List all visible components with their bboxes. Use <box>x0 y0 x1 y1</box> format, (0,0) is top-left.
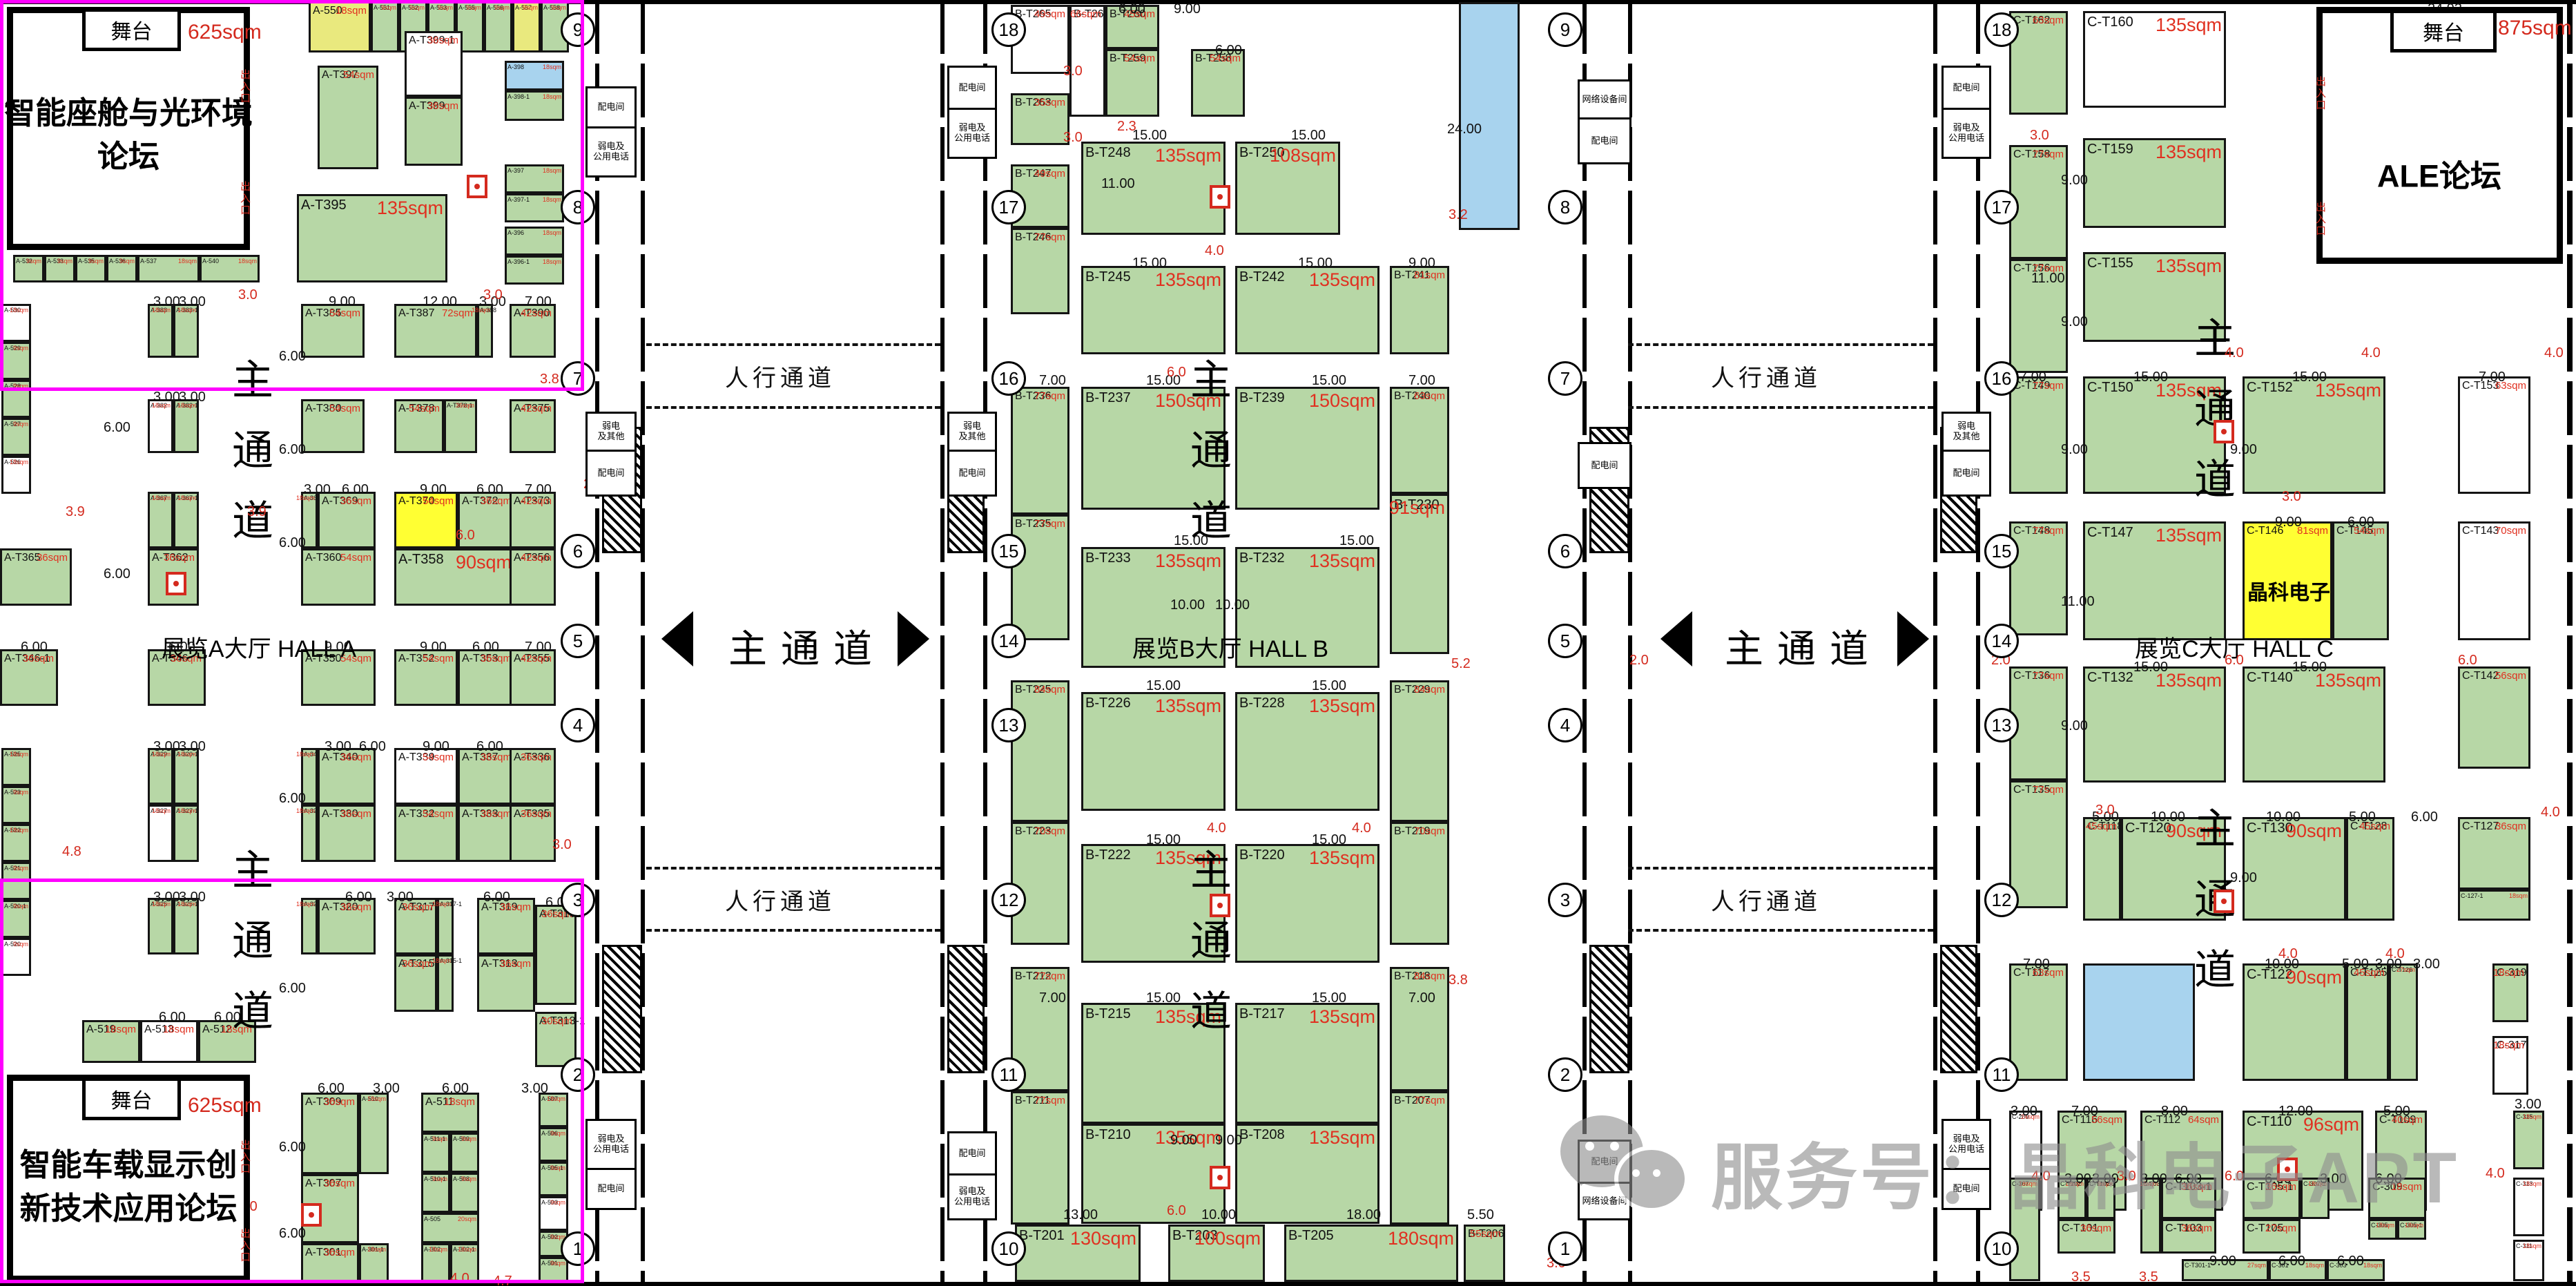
booth-area: 18sqm <box>432 901 451 908</box>
dimension-label: 6.00 <box>104 566 130 582</box>
dimension-label: 6.00 <box>2411 809 2438 825</box>
utility-room: 配电间 <box>585 86 637 128</box>
dimension-label: 6.00 <box>279 981 306 997</box>
axis-number-2: 2 <box>561 1057 595 1092</box>
booth-area: 18sqm <box>458 1246 476 1253</box>
booth-area: 9sqm <box>551 4 566 11</box>
dimension-label: 3.5 <box>2071 1269 2091 1285</box>
booth-A-T352: A-T35254sqm <box>394 649 458 706</box>
booth-area: 180sqm <box>1388 1228 1454 1249</box>
dimension-label: 6.00 <box>483 890 510 905</box>
booth-area: 18sqm <box>2523 1242 2541 1249</box>
booth-id: B-T226 <box>1085 695 1131 711</box>
booth-area: 9sqm <box>550 1199 565 1206</box>
booth-area: 27sqm <box>2247 1262 2266 1269</box>
dimension-label: 3.2 <box>1449 207 1468 223</box>
dimension-label: 3.00 <box>304 482 331 498</box>
booth-A-398-1: A-398-118sqm <box>505 90 564 121</box>
utility-room: 弱电 及其他 <box>1941 412 1991 452</box>
booth-A-551: A-5519sqm <box>371 1 399 52</box>
dimension-label: 15.00 <box>1174 533 1208 549</box>
booth-area: 135sqm <box>2156 15 2222 36</box>
dimension-label: 6.00 <box>345 890 372 905</box>
booth-area: 36sqm <box>427 100 458 112</box>
dimension-label: 15.00 <box>1312 990 1346 1006</box>
booth-area: 54sqm <box>343 69 374 81</box>
booth-A-T333: A-T33336sqm <box>458 805 516 862</box>
axis-number-1: 1 <box>561 1231 595 1266</box>
dimension-label: 15.00 <box>2292 660 2327 675</box>
booth-area: 9sqm <box>461 1135 476 1142</box>
axis-number-11: 11 <box>991 1057 1026 1092</box>
axis-number-3: 3 <box>1548 883 1582 917</box>
booth-B-T201: B-T201130sqm <box>1015 1225 1141 1282</box>
booth-id: A-505 <box>424 1216 440 1222</box>
dimension-label: 3.00 <box>179 390 206 405</box>
booth-area: 42sqm <box>521 403 552 414</box>
dimension-label: 9.00 <box>2061 173 2088 189</box>
axis-number-13: 13 <box>1984 708 2019 742</box>
booth-area: 63sqm <box>1414 390 1445 402</box>
strip-wall-right-1 <box>641 0 645 1286</box>
booth-A-510: A-51018sqm <box>359 1093 389 1174</box>
booth-area: 36sqm <box>521 808 552 820</box>
booth-C-T147: C-T147135sqm <box>2083 521 2226 640</box>
booth-A-525: A-52518sqm <box>1 748 31 786</box>
dimension-label: 6.0 <box>2225 653 2244 669</box>
forum-ale-area: 875sqm <box>2498 17 2572 40</box>
axis-number-4: 4 <box>1548 708 1582 742</box>
booth-A-T353: A-T35336sqm <box>458 649 516 706</box>
booth-C-T128: C-T12845sqm <box>2346 817 2394 921</box>
dimension-label: 9.00 <box>2061 314 2088 330</box>
booth-C-315: C-31518sqm <box>2513 1111 2544 1169</box>
booth-id: C-T150 <box>2087 380 2133 396</box>
booth-area: 18sqm <box>444 1096 475 1108</box>
forum-a-bottom-entrance-2: 出入口 <box>238 1228 252 1263</box>
booth-area: 56sqm <box>2495 670 2526 682</box>
booth-A-T301: A-T30136sqm <box>301 1243 359 1282</box>
booth-area: 77sqm <box>1034 518 1065 530</box>
booth-A-T378: A-T37854sqm <box>394 399 444 453</box>
booth-A-T317: A-T31736sqm <box>394 898 437 954</box>
booth-area: 18sqm <box>178 258 197 265</box>
dimension-label: 6.00 <box>442 1081 469 1097</box>
axis-number-12: 12 <box>991 883 1026 917</box>
booth-area: 9sqm <box>119 258 135 265</box>
booth-A-T335: A-T33536sqm <box>510 805 556 862</box>
booth-C-T143: C-T14370sqm <box>2458 521 2530 640</box>
dimension-label: 3.0 <box>552 837 572 853</box>
dimension-label: 15.00 <box>1312 373 1346 389</box>
booth-A-396: A-39618sqm <box>505 227 564 256</box>
booth-area: 135sqm <box>2156 142 2222 163</box>
booth-A-325: A-32518sqm <box>148 898 173 954</box>
booth-area: 135sqm <box>1309 1127 1375 1149</box>
booth-area: 135sqm <box>1155 269 1221 291</box>
booth-area: 70sqm <box>1414 825 1445 837</box>
booth-A-505: A-50520sqm <box>421 1213 479 1243</box>
axis-number-9: 9 <box>1548 12 1582 47</box>
dimension-label: 15.00 <box>1291 128 1326 144</box>
booth-A-302: A-30218sqm <box>421 1243 450 1282</box>
booth-id: C-T142 <box>2462 670 2499 682</box>
booth-area: 18sqm <box>10 827 28 834</box>
booth-area: 9sqm <box>523 4 538 11</box>
axis-number-2: 2 <box>1548 1057 1582 1092</box>
dimension-label: 5.50 <box>1467 1207 1494 1223</box>
dimension-label: 15.00 <box>1146 678 1181 694</box>
booth-area: 55sqm <box>1470 1228 1501 1240</box>
strip-wall-right-4 <box>1976 0 1980 1286</box>
booth-C-127-1: C-127-118sqm <box>2458 890 2530 921</box>
dimension-label: 9.00 <box>2061 442 2088 458</box>
dimension-label: 3.00 <box>153 294 180 310</box>
booth-id: A-397 <box>507 167 524 174</box>
booth-area: 135sqm <box>377 198 443 219</box>
dimension-label: 6.0 <box>1167 365 1186 381</box>
booth-area: 9sqm <box>13 865 28 872</box>
reserved-area-1 <box>1459 2 1520 230</box>
booth-A-317-1: A-317-118sqm <box>437 898 454 954</box>
booth-id: B-T232 <box>1239 550 1285 566</box>
booth-A-533: A-5339sqm <box>44 255 75 282</box>
booth-area: 35sqm <box>1034 97 1065 108</box>
booth-A-T358: A-T35890sqm <box>394 548 516 606</box>
dimension-label: 3.8 <box>540 372 559 387</box>
booth-B-T228: B-T228135sqm <box>1235 692 1379 811</box>
dimension-label: 4.0 <box>2385 946 2405 962</box>
booth-B-T241: B-T24181sqm <box>1390 266 1449 354</box>
booth-id: A-T360 <box>305 552 341 564</box>
dimension-label: 9.00 <box>2230 442 2257 458</box>
booth-id: B-T217 <box>1239 1006 1285 1022</box>
booth-id: B-T237 <box>1085 390 1131 406</box>
dimension-label: 15.00 <box>2133 370 2168 385</box>
main-aisle-arrow-right-1 <box>898 611 929 666</box>
booth-area: 18sqm <box>152 495 171 501</box>
booth-A-T360: A-T36054sqm <box>301 548 376 606</box>
booth-B-T259: B-T25954sqm <box>1105 49 1159 117</box>
dimension-label: 15.00 <box>1132 128 1167 144</box>
dimension-label: 9.00 <box>1174 1 1201 17</box>
main-aisle-arrow-right-2 <box>1897 611 1929 666</box>
reserved-area-2 <box>2083 963 2195 1081</box>
axis-number-6: 6 <box>561 534 595 568</box>
booth-A-521: A-5219sqm <box>1 862 31 900</box>
dimension-label: 5.00 <box>2342 957 2369 972</box>
main-aisle-horizontal-1: 主通道 <box>728 618 886 674</box>
fire-exit-icon <box>467 175 487 198</box>
dimension-label: 3.9 <box>247 504 267 520</box>
axis-number-5: 5 <box>1548 624 1582 658</box>
dimension-label: 3.00 <box>153 890 180 905</box>
fire-exit-icon <box>301 1203 322 1227</box>
booth-area: 54sqm <box>409 403 440 414</box>
booth-B-T217: B-T217135sqm <box>1235 1003 1379 1124</box>
axis-number-5: 5 <box>561 624 595 658</box>
booth-area: 18sqm <box>543 196 561 203</box>
booth-area: 9sqm <box>13 421 28 428</box>
dimension-label: 2.3 <box>1117 119 1136 135</box>
axis-number-3: 3 <box>561 883 595 917</box>
dimension-label: 9.00 <box>329 294 356 310</box>
booth-A-508: A-5089sqm <box>450 1173 479 1213</box>
utility-room: 配电间 <box>947 450 997 497</box>
booth-A-536: A-5369sqm <box>106 255 137 282</box>
main-aisle-horizontal-2: 主通道 <box>1725 618 1882 674</box>
booth-A-T309: A-T30936sqm <box>301 1093 359 1174</box>
booth-C-T142: C-T14256sqm <box>2458 666 2530 769</box>
dimension-label: 11.00 <box>2031 271 2065 287</box>
booth-A-T355: A-T35542sqm <box>510 649 556 706</box>
booth-id: B-T248 <box>1085 145 1131 161</box>
booth-area: 77sqm <box>2033 148 2064 160</box>
booth-A-396-1: A-396-118sqm <box>505 256 564 285</box>
strip-hatch-bottom-2 <box>947 945 985 1073</box>
booth-A-535: A-5359sqm <box>75 255 106 282</box>
booth-B-T230: B-T23091sqm <box>1390 494 1449 654</box>
booth-A-T319: A-T31936sqm <box>477 898 535 954</box>
booth-A-T369: A-T36936sqm <box>318 492 376 548</box>
booth-C-T130: C-T13090sqm <box>2243 817 2346 921</box>
booth-A-328: A-32818sqm <box>301 805 318 862</box>
booth-A-506: A-5069sqm <box>539 1127 568 1162</box>
dimension-label: 10.00 <box>2151 809 2185 825</box>
dimension-label: 7.00 <box>2023 957 2050 972</box>
booth-A-T370: A-T37054sqm <box>394 492 458 548</box>
booth-area: 18sqm <box>296 751 315 758</box>
booth-A-T337: A-T33736sqm <box>458 748 516 805</box>
main-aisle-vertical-3: 主 通 道 <box>1189 345 1233 557</box>
booth-A-510-1: A-510-19sqm <box>421 1173 450 1213</box>
booth-id: A-T395 <box>301 198 347 213</box>
dimension-label: 9.00 <box>420 482 447 498</box>
booth-A-505-1: A-505-19sqm <box>539 1162 568 1196</box>
booth-A-522: A-52218sqm <box>1 824 31 862</box>
dimension-label: 3.8 <box>1449 972 1468 988</box>
dimension-label: 3.00 <box>373 1081 400 1097</box>
booth-B-T206: B-T20655sqm <box>1464 1225 1505 1282</box>
booth-area: 54sqm <box>340 552 371 564</box>
dimension-label: 7.00 <box>1408 990 1435 1006</box>
right-outer-wall <box>2567 0 2573 1286</box>
booth-B-T229: B-T22984sqm <box>1390 680 1449 822</box>
booth-C-T145: C-T14554sqm <box>2332 521 2389 640</box>
booth-id: B-T210 <box>1085 1127 1131 1143</box>
booth-area: 9sqm <box>550 1164 565 1171</box>
booth-A-T399: A-T39936sqm <box>405 97 463 166</box>
dimension-label: 9.00 <box>1170 1133 1197 1149</box>
booth-area: 18sqm <box>543 258 561 265</box>
dimension-label: 3.0 <box>2030 128 2049 144</box>
booth-area: 84sqm <box>1414 970 1445 982</box>
booth-area: 36sqm <box>37 552 68 564</box>
booth-B-T258: B-T25854sqm <box>1191 49 1245 117</box>
booth-C-T146: C-T14681sqm晶科电子 <box>2243 521 2332 640</box>
booth-A-315-1: A-315-118sqm <box>437 954 454 1012</box>
booth-area: 77sqm <box>2033 670 2064 682</box>
booth-C-311: C-31118sqm <box>2513 1240 2544 1281</box>
axis-number-12: 12 <box>1984 883 2019 917</box>
dimension-label: 15.00 <box>1339 533 1374 549</box>
booth-area: 18sqm <box>10 459 28 466</box>
booth-area: 77sqm <box>1034 231 1065 243</box>
booth-area: 18sqm <box>336 5 367 17</box>
booth-area: 91sqm <box>1389 497 1445 519</box>
dimension-label: 4.0 <box>1352 820 1371 836</box>
axis-number-15: 15 <box>1984 534 2019 568</box>
forum-a-bottom-stage: 舞台 <box>82 1077 181 1120</box>
dimension-label: 3.00 <box>153 739 180 755</box>
booth-A-382: A-38218sqm <box>148 399 173 453</box>
booth-A-397: A-39718sqm <box>505 164 564 193</box>
strip-wall-left-3 <box>1582 0 1587 1286</box>
booth-A-T319-1: A-T319-136sqm <box>535 905 577 1005</box>
dimension-label: 3.0 <box>1063 64 1083 79</box>
watermark: 服务号：晶科电子APT <box>1560 1115 2459 1226</box>
booth-A-301-1: A-301-118sqm <box>359 1243 389 1282</box>
dimension-label: 11.00 <box>1101 176 1135 192</box>
axis-number-7: 7 <box>1548 361 1582 396</box>
booth-C-T159: C-T159135sqm <box>2083 138 2226 228</box>
booth-C-319: C-31918sqm <box>2492 963 2528 1022</box>
booth-C-317: C-31718sqm <box>2492 1036 2528 1095</box>
booth-id: B-T245 <box>1085 269 1131 285</box>
booth-C-T153: C-T15363sqm <box>2458 376 2530 494</box>
ped-passage-line <box>646 867 940 870</box>
ped-passage-label: 人行通道 <box>1711 883 1821 916</box>
booth-id: C-T160 <box>2087 15 2133 30</box>
booth-id: B-T208 <box>1239 1127 1285 1143</box>
forum-ale-entrance-2: 出入口 <box>2313 202 2327 237</box>
booth-A-520-1: A-520-19sqm <box>1 900 31 938</box>
booth-area: 135sqm <box>1155 145 1221 166</box>
booth-area: 9sqm <box>381 4 396 11</box>
booth-A-529: A-5299sqm <box>1 342 31 380</box>
dimension-label: 4.0 <box>1205 243 1224 259</box>
booth-area: 18sqm <box>543 93 561 100</box>
booth-A-527: A-5279sqm <box>1 418 31 456</box>
booth-area: 135sqm <box>1309 1006 1375 1028</box>
ped-passage-label: 人行通道 <box>725 359 835 393</box>
booth-B-T246: B-T24677sqm <box>1011 228 1069 314</box>
booth-A-T397: A-T39754sqm <box>318 66 378 169</box>
booth-area: 18sqm <box>2523 1180 2541 1187</box>
ped-passage-label: 人行通道 <box>1711 359 1821 393</box>
axis-number-1: 1 <box>1548 1231 1582 1266</box>
booth-C-T132: C-T132135sqm <box>2083 666 2226 783</box>
booth-area: 36sqm <box>340 808 371 820</box>
forum-a-bottom-title: 智能车载显示创 新技术应用论坛 <box>19 1143 237 1230</box>
dimension-label: 3.5 <box>2139 1269 2158 1285</box>
axis-number-6: 6 <box>1548 534 1582 568</box>
booth-id: C-T155 <box>2087 256 2133 271</box>
exhibition-floor-plan: A-55018sqmA-5519sqmA-5529sqmA-5539sqmA-5… <box>0 0 2576 1286</box>
dimension-label: 6.00 <box>168 640 195 655</box>
axis-number-8: 8 <box>561 190 595 224</box>
booth-B-T226: B-T226135sqm <box>1081 692 1226 811</box>
booth-area: 77sqm <box>1034 1095 1065 1106</box>
booth-area: 18sqm <box>10 751 28 758</box>
booth-area: 108sqm <box>1270 145 1336 166</box>
booth-area: 18sqm <box>152 807 171 814</box>
dimension-label: 3.00 <box>179 294 206 310</box>
booth-area: 9sqm <box>550 1260 565 1267</box>
hall-label-hall-b: 展览B大厅 HALL B <box>1132 630 1328 664</box>
booth-B-T218: B-T21884sqm <box>1390 967 1449 1091</box>
booth-area: 135sqm <box>1309 269 1375 291</box>
booth-id: B-T220 <box>1239 847 1285 863</box>
booth-A-T375: A-T37542sqm <box>510 399 556 453</box>
booth-A-530: A-53018sqm <box>1 304 31 342</box>
dimension-label: 9.00 <box>2209 1254 2236 1269</box>
dimension-label: 9.00 <box>420 640 447 655</box>
dimension-label: 6.00 <box>159 1010 186 1026</box>
booth-area: 36sqm <box>2495 820 2526 832</box>
booth-B-T220: B-T220135sqm <box>1235 844 1379 963</box>
booth-area: 100sqm <box>1194 1228 1261 1249</box>
dimension-label: 4.0 <box>2278 946 2298 962</box>
dimension-label: 15.00 <box>1312 678 1346 694</box>
dimension-label: 9.00 <box>1215 1133 1242 1149</box>
utility-room: 配电间 <box>1578 442 1631 489</box>
booth-id: B-T215 <box>1085 1006 1131 1022</box>
booth-area: 9sqm <box>26 258 41 265</box>
booth-id: C-T132 <box>2087 670 2133 686</box>
booth-area: 54sqm <box>329 403 360 414</box>
booth-area: 54sqm <box>1124 52 1155 64</box>
booth-area: 18sqm <box>2509 892 2528 899</box>
booth-area: 77sqm <box>1034 390 1065 402</box>
booth-area: 36sqm <box>324 1178 355 1189</box>
booth-area: 18sqm <box>429 1246 447 1253</box>
dimension-label: 4.0 <box>2361 345 2381 361</box>
booth-A-T346-1: A-T346-136sqm <box>0 649 58 706</box>
booth-A-556: A-5569sqm <box>484 1 512 52</box>
booth-area: 135sqm <box>2156 525 2222 546</box>
booth-A-T399-1: A-T399-136sqm <box>405 31 463 97</box>
booth-area: 9sqm <box>461 1175 476 1182</box>
strip-wall-left-1 <box>595 0 599 1286</box>
booth-id: C-T147 <box>2087 525 2133 541</box>
booth-area: 36sqm <box>324 1247 355 1258</box>
booth-id: C-T140 <box>2247 670 2293 686</box>
booth-area: 9sqm <box>409 4 425 11</box>
booth-A-398: A-39818sqm <box>505 61 564 90</box>
booth-area: 20sqm <box>458 1216 476 1222</box>
booth-B-T242: B-T242135sqm <box>1235 266 1379 354</box>
fire-exit-icon <box>2214 420 2234 443</box>
utility-room: 弱电及 公用电话 <box>585 126 637 177</box>
booth-C-T149: C-T14977sqm <box>2009 376 2068 494</box>
dimension-label: 7.00 <box>525 482 552 498</box>
booth-A-537: A-53718sqm <box>137 255 200 282</box>
booth-C-313: C-31318sqm <box>2513 1178 2544 1236</box>
booth-A-T315: A-T31536sqm <box>394 954 437 1012</box>
booth-A-532: A-5329sqm <box>13 255 44 282</box>
booth-A-513: A-51318sqm <box>140 1020 198 1063</box>
booth-B-T219: B-T21970sqm <box>1390 822 1449 945</box>
booth-A-528: A-5289sqm <box>1 380 31 418</box>
annotation-text: 24.00 <box>1447 122 1482 137</box>
booth-area: 18sqm <box>2493 967 2524 979</box>
booth-C-T122: C-T12290sqm <box>2243 963 2346 1081</box>
booth-A-T356: A-T35642sqm <box>510 548 556 606</box>
dimension-label: 6.00 <box>214 1010 241 1026</box>
forum-a-top-area: 625sqm <box>188 21 262 44</box>
dimension-label: 3.00 <box>2515 1097 2541 1113</box>
